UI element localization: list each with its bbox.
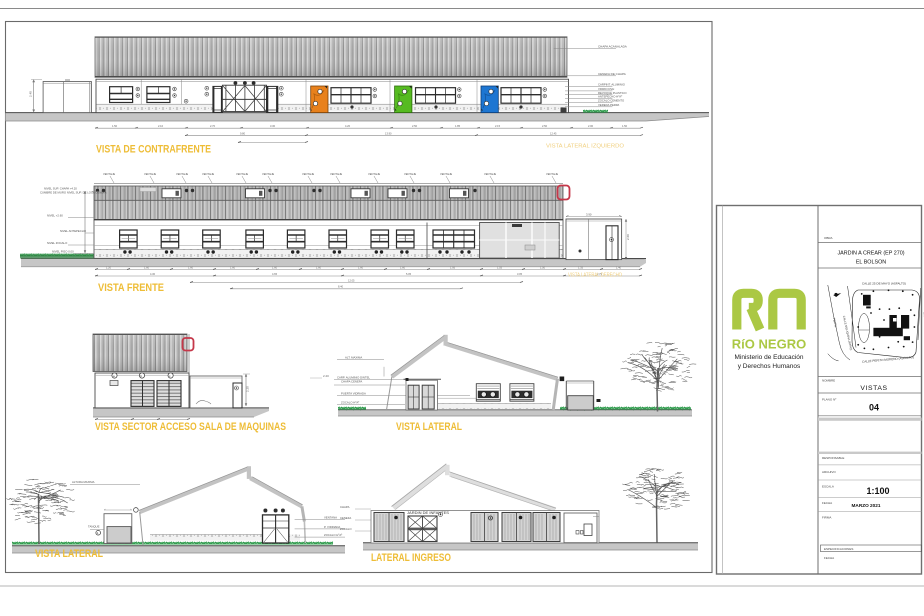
svg-text:JARDIN A CREAR (EP 270): JARDIN A CREAR (EP 270) [837,251,904,257]
svg-text:1.85: 1.85 [455,124,461,128]
svg-text:NIVEL ZOCALO: NIVEL ZOCALO [47,241,68,245]
svg-text:2.50: 2.50 [412,124,418,128]
svg-text:2.40: 2.40 [29,91,33,97]
svg-text:PUERTA VIDRIADA: PUERTA VIDRIADA [341,392,366,396]
svg-text:CALLE 25 DE MAYO (ASFALTO): CALLE 25 DE MAYO (ASFALTO) [862,282,906,286]
svg-text:Ministerio de Educación: Ministerio de Educación [734,354,803,361]
svg-text:OBRA: OBRA [824,236,833,240]
svg-text:FECHA: FECHA [824,556,834,560]
svg-text:RESPONSABLE: RESPONSABLE [822,456,844,460]
svg-text:1.50: 1.50 [540,265,546,269]
svg-text:ARCHIVO: ARCHIVO [822,470,836,474]
svg-text:1.55: 1.55 [497,265,503,269]
svg-text:1.50: 1.50 [112,124,118,128]
svg-text:NIVEL +2.60: NIVEL +2.60 [47,214,63,218]
svg-text:2.20: 2.20 [246,386,250,392]
svg-text:1.60: 1.60 [400,265,406,269]
svg-text:VENT.EJE: VENT.EJE [368,172,380,176]
svg-text:NIVEL ANTEPECHO: NIVEL ANTEPECHO [60,229,87,233]
svg-text:VENT.EJE: VENT.EJE [302,172,314,176]
svg-text:EL BOLSON: EL BOLSON [856,260,886,266]
svg-text:LATERAL INGRESO: LATERAL INGRESO [371,552,451,564]
svg-text:CARPINT. ALUMINIO: CARPINT. ALUMINIO [598,83,626,87]
svg-text:13.90: 13.90 [385,131,392,135]
svg-text:1.40: 1.40 [616,265,622,269]
svg-text:ZOCALO: ZOCALO [340,527,352,531]
svg-text:2.20: 2.20 [323,374,329,378]
svg-text:2.60: 2.60 [626,234,630,240]
svg-text:1.35: 1.35 [578,265,584,269]
svg-text:4.30: 4.30 [150,272,156,276]
svg-text:P. VIDRIADA: P. VIDRIADA [324,525,340,529]
svg-text:1.50: 1.50 [622,124,628,128]
svg-text:2.50: 2.50 [542,124,548,128]
svg-text:VISTA SECTOR ACCESO SALA DE MA: VISTA SECTOR ACCESO SALA DE MAQUINAS [95,421,286,433]
svg-text:CHAPA: CHAPA [340,505,350,509]
svg-text:FIRMA: FIRMA [822,516,831,520]
svg-text:1.60: 1.60 [358,265,364,269]
svg-text:1:100: 1:100 [866,486,889,496]
svg-text:NIVEL PISO 0.00: NIVEL PISO 0.00 [52,250,74,254]
svg-text:VISTA LATERAL: VISTA LATERAL [35,548,103,560]
svg-text:VENT.EJE: VENT.EJE [330,172,342,176]
svg-text:3.05: 3.05 [517,272,523,276]
svg-text:VENT.EJE: VENT.EJE [440,172,452,176]
svg-text:CHAPA CENEFA: CHAPA CENEFA [341,380,362,384]
svg-text:VISTA LATERAL DERECHO: VISTA LATERAL DERECHO [568,273,622,279]
svg-text:NOMBRE: NOMBRE [822,379,835,383]
svg-text:12.05: 12.05 [348,278,355,282]
svg-text:VISTAS: VISTAS [860,385,887,392]
svg-text:ZOCALO CEMENTO: ZOCALO CEMENTO [598,99,625,103]
svg-text:JARDIN DE INFANTES: JARDIN DE INFANTES [407,511,450,515]
svg-text:y Derechos Humanos: y Derechos Humanos [738,363,801,370]
svg-text:FECHA: FECHA [822,501,832,505]
svg-text:MARZO 2021: MARZO 2021 [852,503,881,508]
svg-text:PLANO Nº: PLANO Nº [822,398,837,402]
svg-text:CENEFA: CENEFA [340,516,351,520]
svg-text:2.00: 2.00 [588,124,594,128]
svg-text:RíO NEGRO: RíO NEGRO [732,337,806,352]
svg-text:VISTA DE CONTRAFRENTE: VISTA DE CONTRAFRENTE [96,144,211,156]
svg-text:CENEFA DE CHAPA: CENEFA DE CHAPA [598,72,626,76]
svg-text:VEREDA PERIM.: VEREDA PERIM. [598,103,620,107]
svg-text:1.60: 1.60 [188,265,194,269]
svg-text:VENT.EJE: VENT.EJE [404,172,416,176]
svg-text:9.80: 9.80 [240,131,246,135]
svg-text:4.65: 4.65 [272,272,278,276]
svg-text:1.95: 1.95 [450,265,456,269]
svg-text:VISTA LATERAL: VISTA LATERAL [396,421,462,433]
svg-text:ZOCALO HºAº: ZOCALO HºAº [341,401,359,405]
svg-text:VENT.EJE: VENT.EJE [236,172,248,176]
svg-text:TANQUE: TANQUE [88,525,100,529]
svg-text:VENT.EJE: VENT.EJE [484,172,496,176]
svg-text:VENT.EJE: VENT.EJE [262,172,274,176]
svg-text:ALTURA MAXIMA: ALTURA MAXIMA [72,480,95,484]
svg-text:1.20: 1.20 [106,265,112,269]
svg-text:ZOCALO HºAº: ZOCALO HºAº [324,533,342,537]
svg-text:VISTA FRENTE: VISTA FRENTE [98,282,164,294]
svg-text:ESPECIFICACIONES: ESPECIFICACIONES [824,547,853,551]
svg-text:1.60: 1.60 [230,265,236,269]
svg-text:1.60: 1.60 [144,265,150,269]
svg-text:VENT.EJE: VENT.EJE [202,172,214,176]
svg-text:5.05: 5.05 [406,272,412,276]
svg-text:3.90: 3.90 [586,213,592,217]
svg-text:VISTA LATERAL IZQUIERDO: VISTA LATERAL IZQUIERDO [546,144,624,150]
svg-text:CHAPA ACANALADA: CHAPA ACANALADA [598,45,627,49]
svg-text:4.20: 4.20 [345,124,351,128]
svg-text:ESCALA: ESCALA [822,485,834,489]
svg-text:VENT.EJE: VENT.EJE [176,172,188,176]
svg-text:ALT. MAXIMA: ALT. MAXIMA [345,356,362,360]
svg-text:8.40: 8.40 [338,285,344,289]
svg-text:VENT.EJE: VENT.EJE [144,172,156,176]
svg-text:VENT.EJE: VENT.EJE [103,172,115,176]
svg-text:VENTANA: VENTANA [324,516,337,520]
svg-text:2.10: 2.10 [158,124,164,128]
svg-text:VENT.EJE: VENT.EJE [546,172,558,176]
svg-text:12.45: 12.45 [550,131,557,135]
svg-text:04: 04 [869,403,879,413]
svg-text:2.15: 2.15 [495,124,501,128]
svg-text:3.30: 3.30 [270,124,276,128]
svg-text:1.60: 1.60 [316,265,322,269]
svg-text:2.70: 2.70 [210,124,216,128]
svg-text:1.60: 1.60 [272,265,278,269]
